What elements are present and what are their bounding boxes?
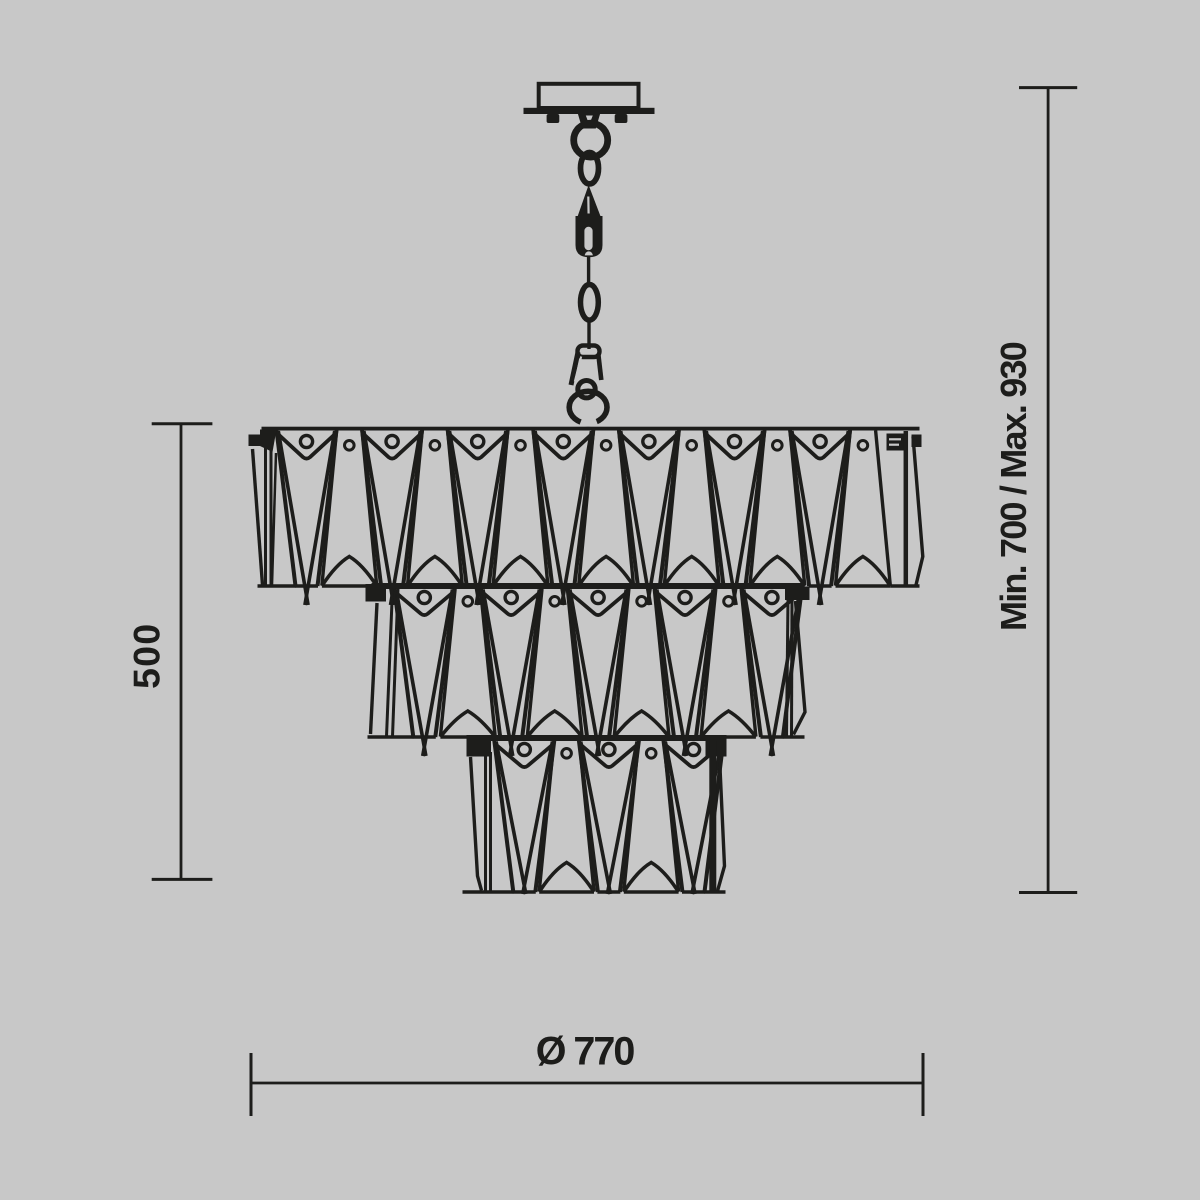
svg-text:Min. 700 / Max. 930: Min. 700 / Max. 930: [993, 342, 1034, 631]
svg-text:500: 500: [126, 623, 168, 689]
svg-text:Ø 770: Ø 770: [536, 1030, 635, 1074]
